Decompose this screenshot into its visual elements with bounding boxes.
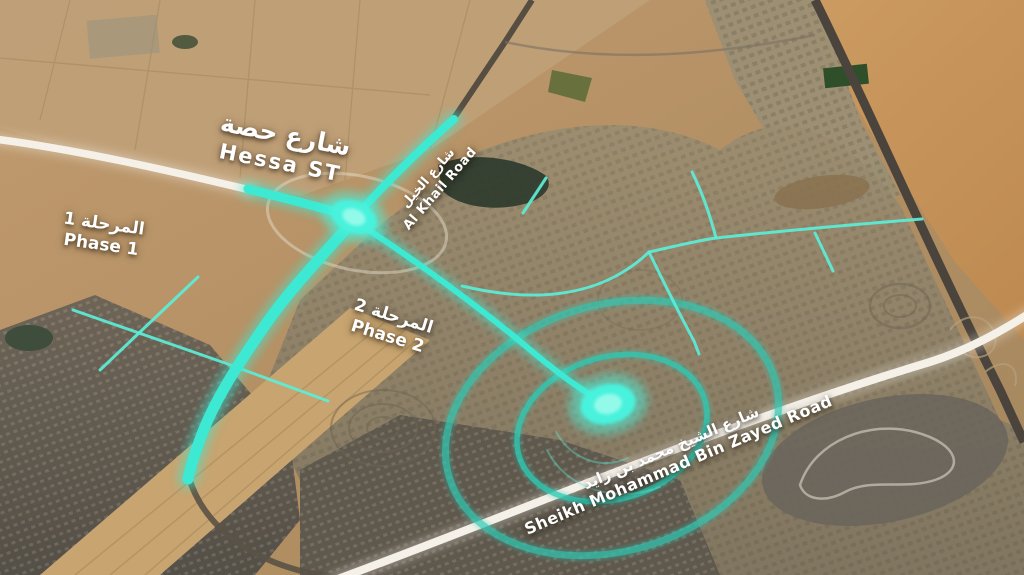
satellite-map-image: [0, 0, 1024, 575]
terrain-background: [0, 0, 1024, 575]
map-canvas: شارع حصة Hessa ST المرحلة 1 Phase 1 المر…: [0, 0, 1024, 575]
